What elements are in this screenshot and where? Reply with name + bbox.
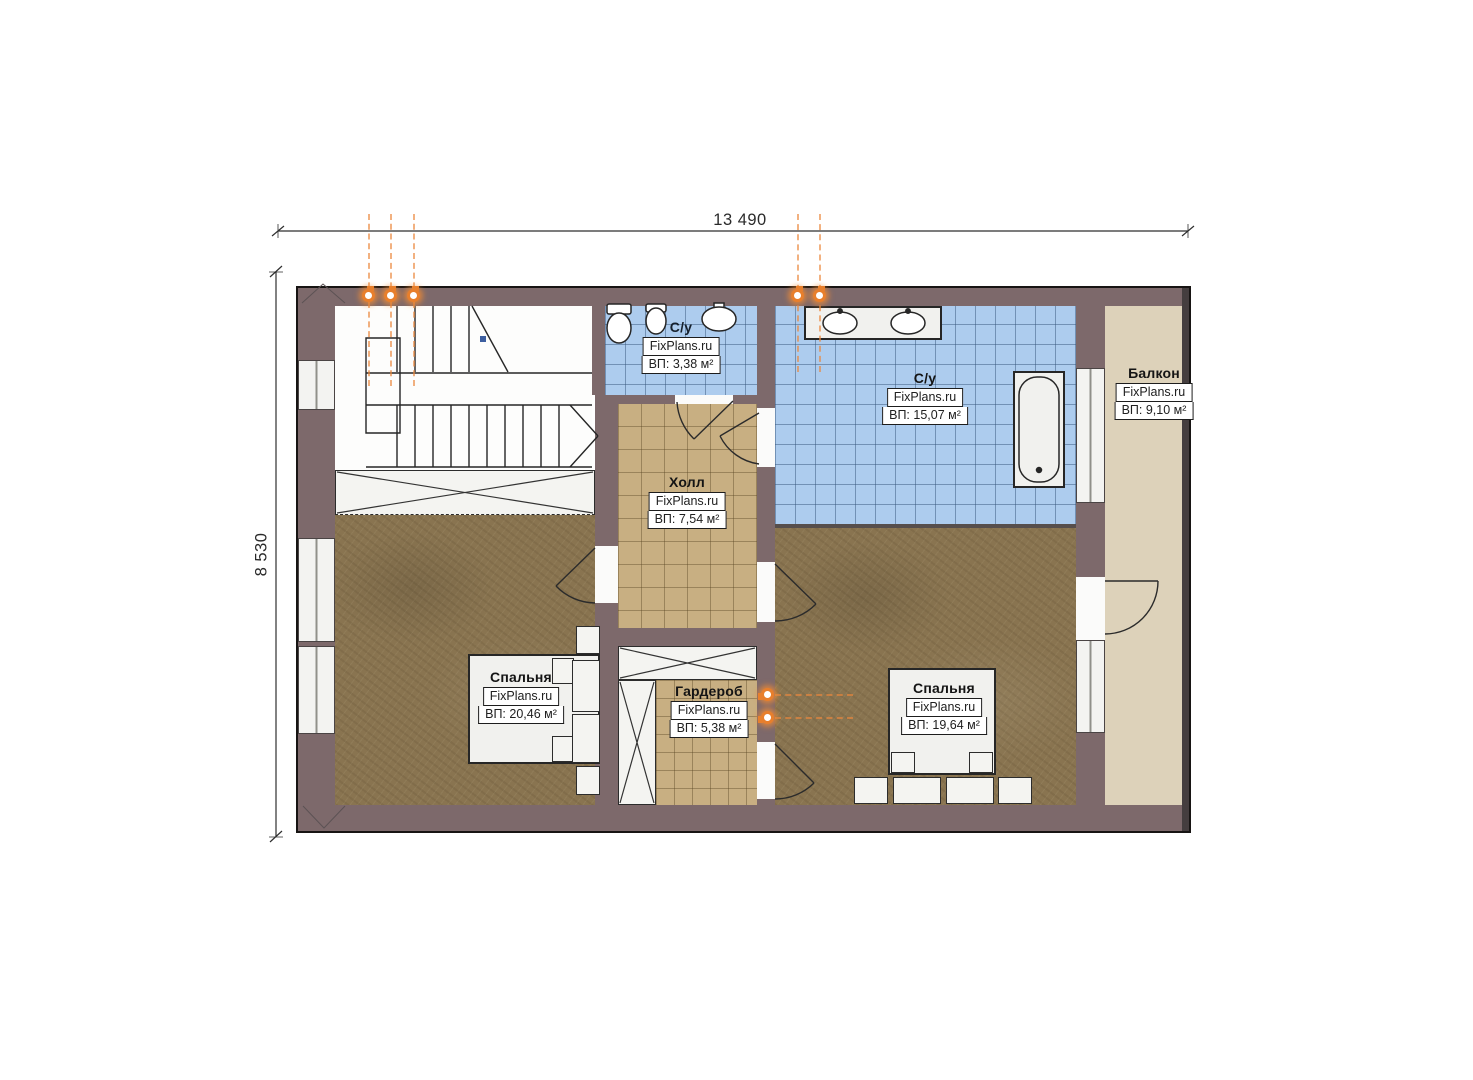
room-name: Спальня	[913, 680, 975, 696]
wall-corner-marks	[302, 284, 345, 828]
staircase	[366, 306, 598, 467]
bathtub-inner	[1019, 377, 1059, 482]
room-name: Холл	[669, 474, 705, 490]
area-box: ВП: 3,38 м²	[642, 356, 721, 374]
drain-dot	[1037, 468, 1042, 473]
dimension-height-label: 8 530	[253, 525, 272, 585]
area-box: ВП: 7,54 м²	[648, 511, 727, 529]
watermark-box: FixPlans.ru	[1116, 383, 1193, 402]
room-label-wardrobe: Гардероб FixPlans.ru ВП: 5,38 м²	[670, 683, 749, 738]
room-label-balcony: Балкон FixPlans.ru ВП: 9,10 м²	[1115, 365, 1194, 420]
room-name: С/у	[670, 319, 692, 335]
plumbing-riser-icon	[407, 289, 420, 302]
room-label-bath-large: С/у FixPlans.ru ВП: 15,07 м²	[882, 370, 968, 425]
area-box: ВП: 5,38 м²	[670, 720, 749, 738]
stair-marker-dot	[480, 336, 486, 342]
room-name: Спальня	[490, 669, 552, 685]
riser-dashed-line	[775, 717, 853, 719]
door-arc	[775, 744, 814, 799]
area-box: ВП: 15,07 м²	[882, 407, 968, 425]
door-arc	[775, 564, 816, 621]
room-label-bedroom-right: Спальня FixPlans.ru ВП: 19,64 м²	[901, 680, 987, 735]
area-box: ВП: 19,64 м²	[901, 717, 987, 735]
faucet-dot	[906, 309, 910, 313]
riser-dashed-line	[775, 694, 853, 696]
plumbing-riser-icon	[362, 289, 375, 302]
dimension-width-label: 13 490	[713, 211, 766, 230]
room-label-bath-small: С/у FixPlans.ru ВП: 3,38 м²	[642, 319, 721, 374]
plan-linework	[0, 0, 1473, 1080]
door-arc	[556, 548, 595, 603]
watermark-box: FixPlans.ru	[671, 701, 748, 720]
door-arc	[720, 413, 759, 464]
plumbing-riser-icon	[761, 688, 774, 701]
plumbing-riser-icon	[791, 289, 804, 302]
area-box: ВП: 9,10 м²	[1115, 402, 1194, 420]
sink-fixture	[823, 312, 857, 334]
area-box: ВП: 20,46 м²	[478, 706, 564, 724]
room-name: Балкон	[1128, 365, 1180, 381]
room-label-bedroom-left: Спальня FixPlans.ru ВП: 20,46 м²	[478, 669, 564, 724]
plumbing-riser-icon	[384, 289, 397, 302]
faucet-dot	[838, 309, 842, 313]
watermark-box: FixPlans.ru	[649, 492, 726, 511]
plumbing-riser-icon	[813, 289, 826, 302]
toilet-fixture	[607, 313, 631, 343]
plumbing-riser-icon	[761, 711, 774, 724]
watermark-box: FixPlans.ru	[906, 698, 983, 717]
watermark-box: FixPlans.ru	[643, 337, 720, 356]
doors	[556, 401, 1158, 799]
watermark-box: FixPlans.ru	[887, 388, 964, 407]
room-name: С/у	[914, 370, 936, 386]
room-label-hall: Холл FixPlans.ru ВП: 7,54 м²	[648, 474, 727, 529]
room-name: Гардероб	[675, 683, 743, 699]
floor-plan-canvas: 13 490 8 530 С/у FixPlans.ru ВП: 3,38 м²…	[0, 0, 1473, 1080]
watermark-box: FixPlans.ru	[483, 687, 560, 706]
door-arc	[1105, 581, 1158, 634]
sink-fixture	[891, 312, 925, 334]
